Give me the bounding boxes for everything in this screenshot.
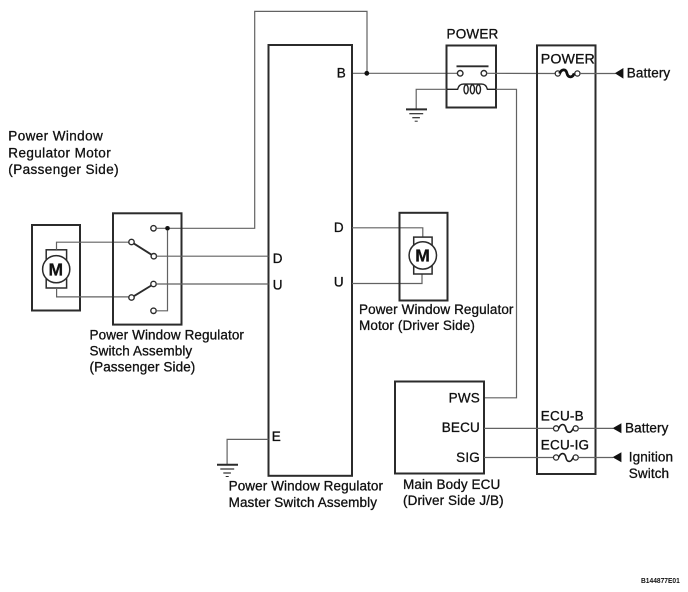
svg-text:(Passenger Side): (Passenger Side) xyxy=(8,162,119,177)
svg-text:Switch: Switch xyxy=(629,466,669,481)
svg-text:PWS: PWS xyxy=(449,391,480,406)
svg-text:U: U xyxy=(334,275,344,290)
svg-text:BECU: BECU xyxy=(442,420,480,435)
svg-text:D: D xyxy=(273,251,283,266)
svg-text:B144877E01: B144877E01 xyxy=(641,576,680,585)
svg-text:Motor (Driver Side): Motor (Driver Side) xyxy=(359,318,475,333)
svg-text:Battery: Battery xyxy=(627,65,671,80)
svg-text:(Driver Side J/B): (Driver Side J/B) xyxy=(403,493,504,508)
svg-text:Power Window: Power Window xyxy=(8,129,103,144)
svg-text:SIG: SIG xyxy=(456,450,480,465)
svg-text:Switch Assembly: Switch Assembly xyxy=(90,344,193,359)
svg-text:ECU-IG: ECU-IG xyxy=(541,438,589,453)
svg-text:POWER: POWER xyxy=(541,52,595,68)
svg-text:M: M xyxy=(49,260,64,280)
svg-text:B: B xyxy=(337,65,346,80)
svg-text:M: M xyxy=(415,246,430,266)
svg-text:Regulator Motor: Regulator Motor xyxy=(8,145,111,160)
svg-text:Power Window Regulator: Power Window Regulator xyxy=(229,479,384,494)
svg-text:POWER: POWER xyxy=(447,27,499,42)
svg-text:D: D xyxy=(334,220,344,235)
svg-text:E: E xyxy=(272,429,281,444)
svg-text:ECU-B: ECU-B xyxy=(541,408,584,423)
svg-text:Main Body ECU: Main Body ECU xyxy=(403,477,500,492)
svg-text:Ignition: Ignition xyxy=(629,450,673,465)
svg-text:Power Window Regulator: Power Window Regulator xyxy=(359,302,514,317)
svg-text:Master Switch Assembly: Master Switch Assembly xyxy=(229,495,378,510)
svg-text:Power Window Regulator: Power Window Regulator xyxy=(90,327,245,342)
svg-text:(Passenger Side): (Passenger Side) xyxy=(90,360,196,375)
svg-text:U: U xyxy=(273,278,283,293)
svg-text:Battery: Battery xyxy=(625,420,669,435)
